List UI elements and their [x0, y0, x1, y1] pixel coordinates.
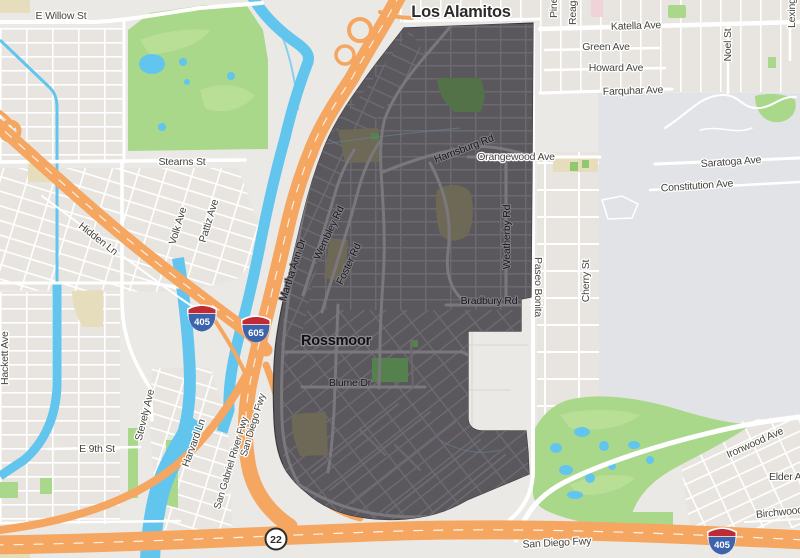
street-label: Hackett Ave	[0, 331, 11, 385]
map-canvas[interactable]: E Willow St Stearns St Hidden Ln Volk Av…	[0, 0, 800, 558]
street-label: Green Ave	[582, 41, 630, 53]
pond	[628, 441, 640, 449]
street-label: Orangewood Ave	[477, 151, 555, 163]
pond	[646, 456, 654, 464]
street-label: Lexington	[786, 0, 798, 28]
pond	[567, 491, 583, 499]
shield-number: 605	[248, 328, 265, 339]
street-label: Blume Dr	[329, 377, 372, 389]
region-park	[372, 358, 408, 382]
pond	[158, 123, 166, 131]
street-label: Bradbury Rd	[461, 295, 518, 307]
street-label: E Willow St	[36, 10, 87, 22]
street-label: Farquhar Ave	[603, 84, 664, 98]
street-label: Weatherby Rd	[501, 204, 513, 269]
shield-number: 405	[194, 317, 211, 328]
small-park	[768, 57, 776, 68]
pond	[559, 465, 573, 475]
park-green	[128, 5, 268, 151]
street-label: Elder Ave	[769, 471, 800, 483]
neighborhood-streets	[0, 168, 268, 292]
military-base-area	[598, 93, 800, 425]
pond	[227, 72, 235, 80]
street-label: Stearns St	[158, 156, 205, 168]
street-label: E 9th St	[79, 443, 115, 455]
pond	[550, 443, 562, 453]
building-patch	[591, 0, 603, 17]
small-park	[668, 5, 686, 18]
street-label: Pine St	[548, 0, 560, 18]
pond	[139, 54, 165, 74]
street-label: Cherry St	[580, 259, 592, 302]
small-park	[570, 162, 578, 171]
region-label: Rossmoor	[301, 333, 372, 349]
small-park	[40, 478, 52, 494]
small-park	[0, 482, 18, 498]
street-label: Paseo Bonita	[532, 257, 544, 317]
shield-number: 405	[714, 540, 731, 551]
pond	[184, 79, 190, 85]
shield-number: 22	[270, 534, 282, 546]
street-label: Howard Ave	[589, 62, 644, 74]
small-park	[582, 160, 589, 168]
sr22-shield: 22	[266, 529, 287, 550]
street-label: Reagan St	[567, 0, 579, 25]
pond	[574, 427, 590, 437]
city-label: Los Alamitos	[411, 3, 511, 21]
region-park	[371, 133, 379, 140]
street-label: Katella Ave	[611, 19, 662, 33]
school-patch	[0, 0, 30, 13]
pond	[179, 58, 187, 66]
street-label: Noel St	[722, 28, 734, 61]
pond	[599, 441, 609, 451]
